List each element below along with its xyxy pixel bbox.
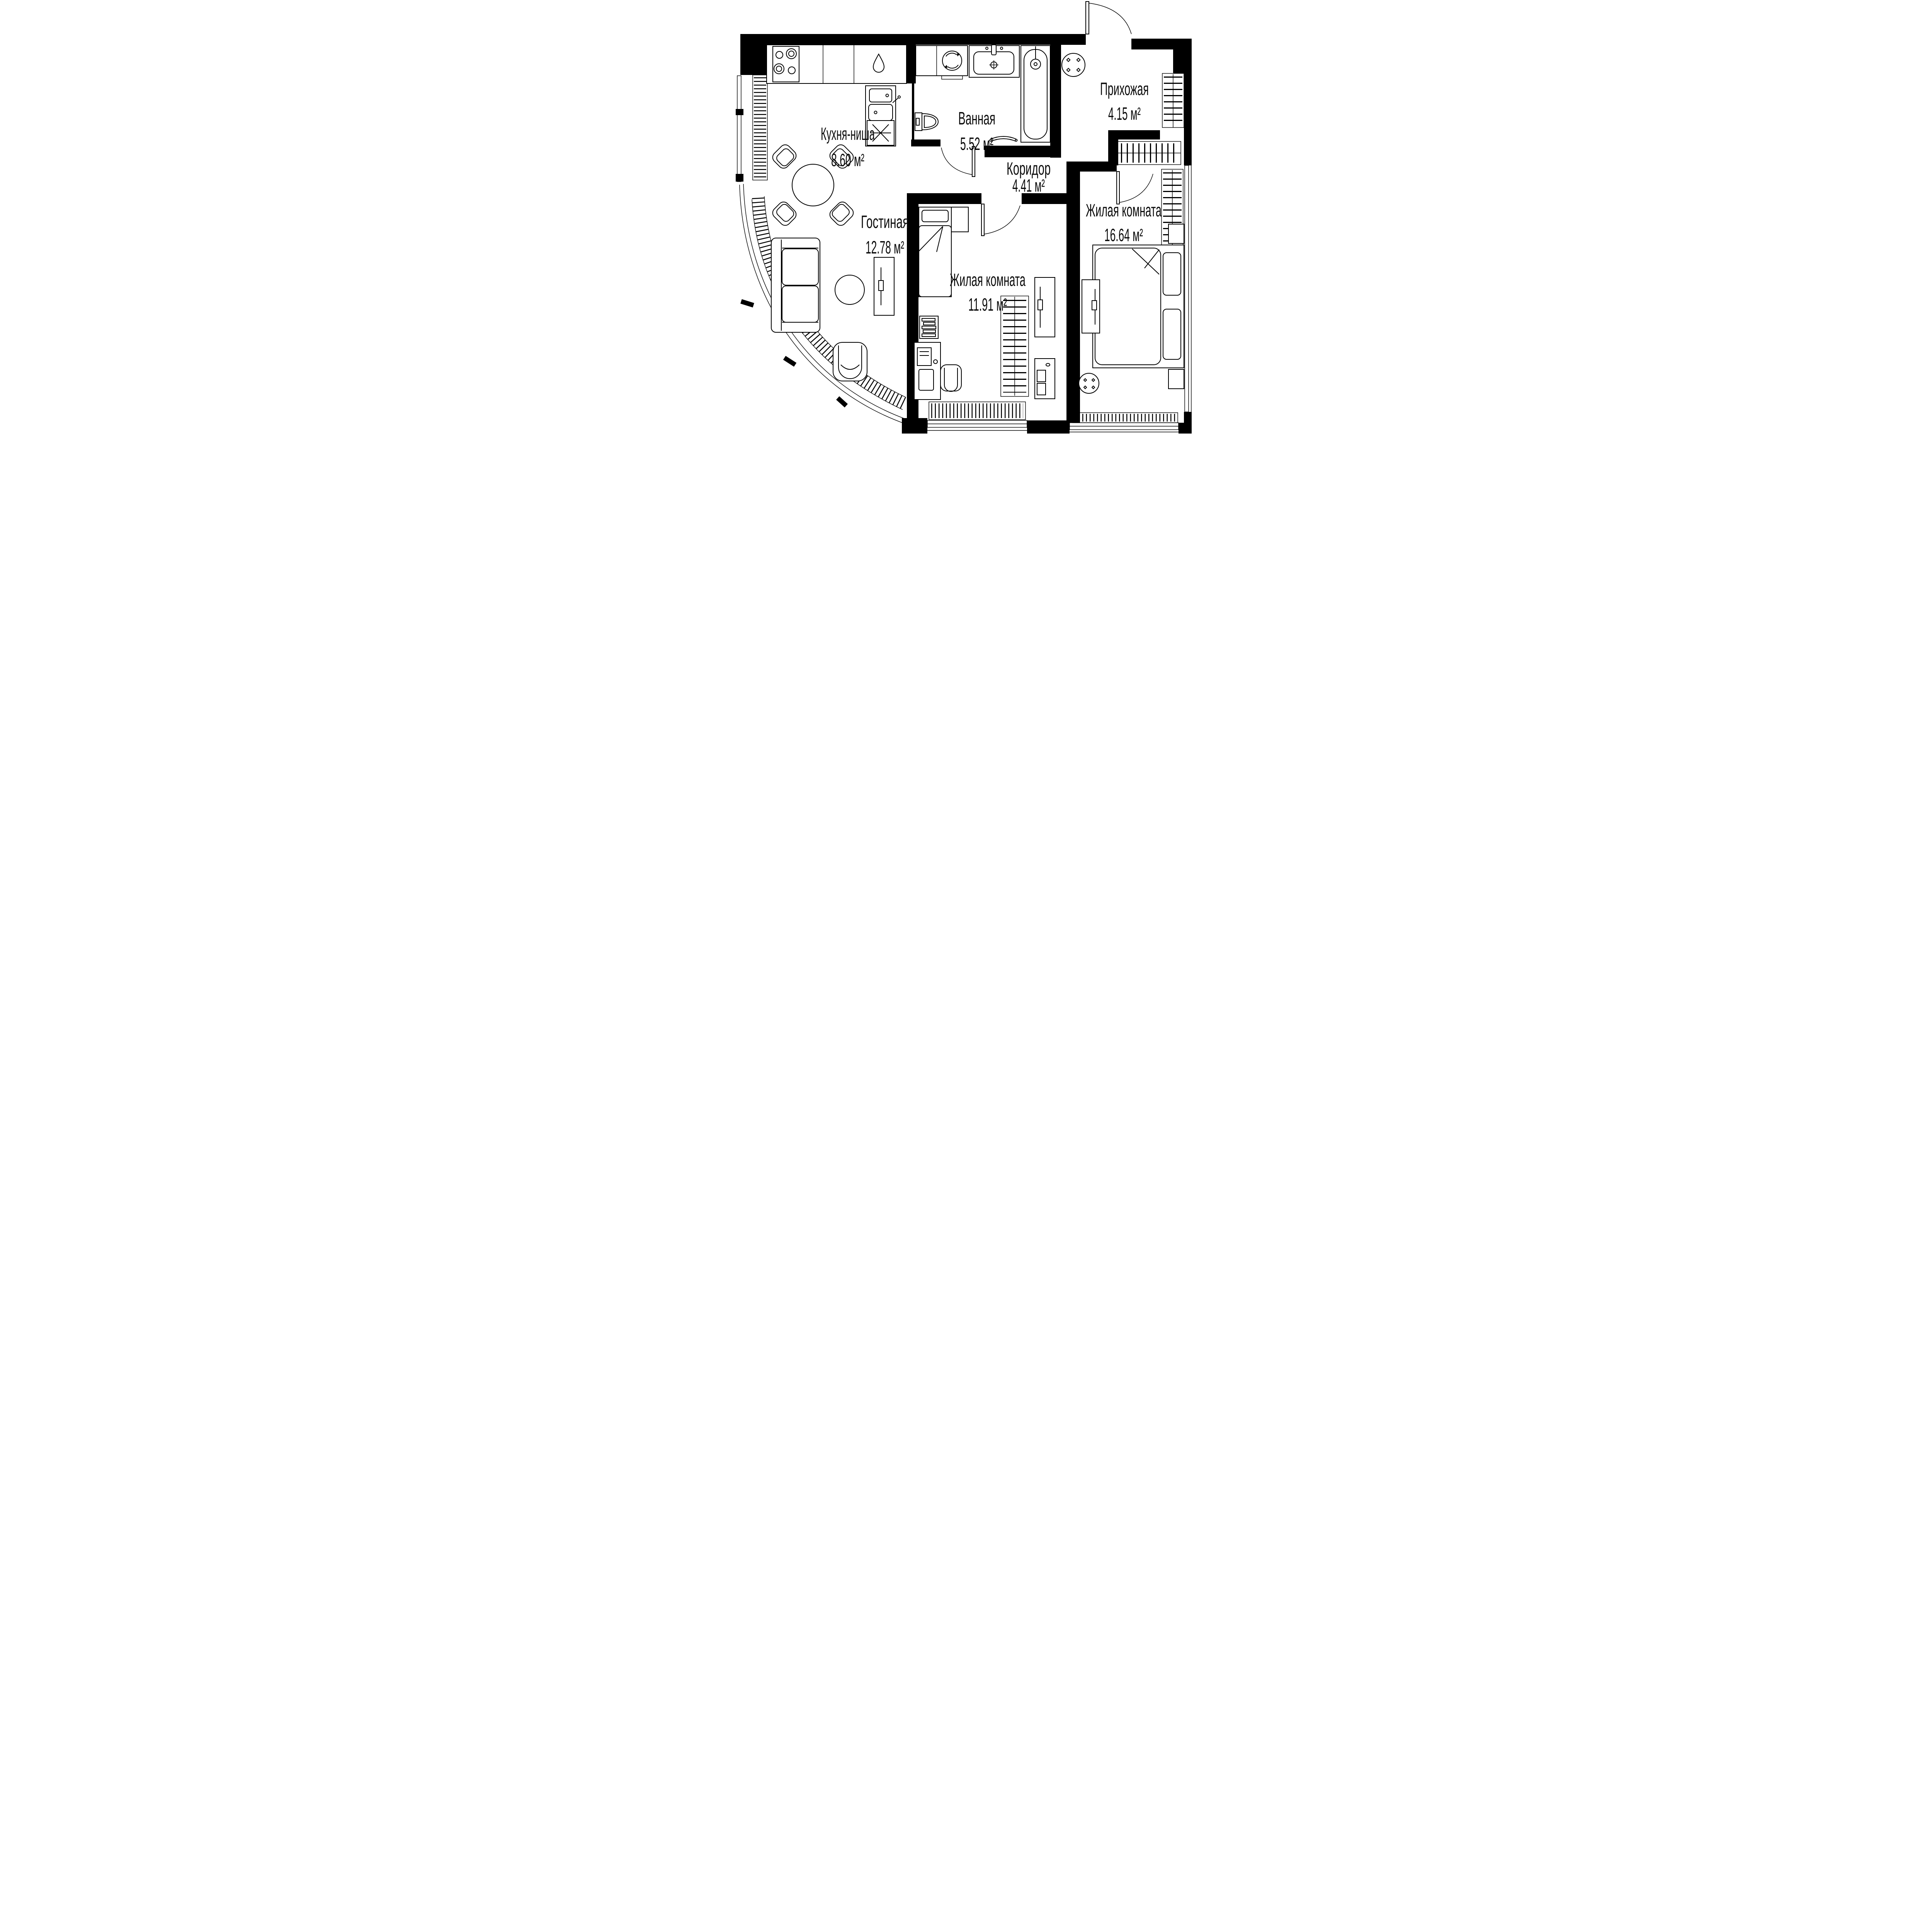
room-label-bathroom-area: 5.52 м² xyxy=(960,134,993,154)
room-label-kitchen-area: 8.60 м² xyxy=(831,150,864,170)
coffee-table-icon xyxy=(835,275,864,304)
room-label-bedroom1-name: Жилая комната xyxy=(950,270,1026,290)
tv-stand-icon xyxy=(1082,280,1100,333)
window-mullion xyxy=(736,109,743,115)
nightstand-icon xyxy=(1168,369,1184,389)
office-chair-icon xyxy=(940,365,961,391)
window-mullion xyxy=(838,398,846,406)
desk-icon xyxy=(914,342,940,400)
radiator-icon xyxy=(753,75,767,180)
toilet-icon xyxy=(915,113,938,131)
towel-rail-icon xyxy=(990,136,1017,141)
stove-icon xyxy=(773,46,799,82)
room-bedroom2 xyxy=(1079,224,1184,393)
room-label-entry-area: 4.15 м² xyxy=(1108,104,1141,124)
entrance-door-icon xyxy=(1086,2,1131,34)
tv-stand-icon xyxy=(1035,277,1055,337)
double-bed-icon xyxy=(1093,224,1184,389)
sofa-icon xyxy=(771,238,820,332)
window-left xyxy=(737,76,741,182)
dresser-icon xyxy=(1035,359,1055,399)
bookshelf-icon xyxy=(920,316,938,338)
armchair-icon xyxy=(833,342,867,381)
room-label-corridor-area: 4.41 м² xyxy=(1012,175,1045,196)
vanity-sink-icon xyxy=(969,45,1019,77)
round-table-icon xyxy=(1079,373,1099,393)
wardrobe-icon xyxy=(1112,141,1181,165)
floor-plan-page: Кухня-ниша 8.60 м² Ванная 5.52 м² Прихож… xyxy=(734,0,1198,435)
room-label-bedroom1-area: 11.91 м² xyxy=(968,294,1007,315)
window-right xyxy=(1185,165,1189,412)
floor-plan-svg: Кухня-ниша 8.60 м² Ванная 5.52 м² Прихож… xyxy=(734,0,1198,435)
nightstand-icon xyxy=(951,207,968,232)
window-mullion xyxy=(741,301,753,305)
washing-machine-icon xyxy=(916,46,968,79)
radiator-icon xyxy=(929,402,1026,420)
bedroom2-door-icon xyxy=(1117,172,1153,204)
room-label-entry-name: Прихожая xyxy=(1100,79,1149,99)
nightstand-icon xyxy=(1168,224,1184,243)
room-label-bathroom-name: Ванная xyxy=(958,108,995,128)
room-label-living-name: Гостиная xyxy=(861,212,909,232)
room-label-kitchen-name: Кухня-ниша xyxy=(821,124,875,144)
room-label-living-area: 12.78 м² xyxy=(866,237,904,257)
bedroom1-door-icon xyxy=(981,204,1020,236)
wardrobe-icon xyxy=(1162,73,1184,128)
room-label-bedroom2-area: 16.64 м² xyxy=(1104,225,1143,245)
window-mullion xyxy=(736,174,743,182)
window-mullion xyxy=(784,358,795,365)
entry-table-icon xyxy=(1062,53,1085,77)
bathtub-icon xyxy=(1021,46,1050,142)
room-label-bedroom2-name: Жилая комната xyxy=(1086,200,1162,220)
radiator-icon xyxy=(1073,413,1178,423)
tv-stand-icon xyxy=(874,257,894,315)
